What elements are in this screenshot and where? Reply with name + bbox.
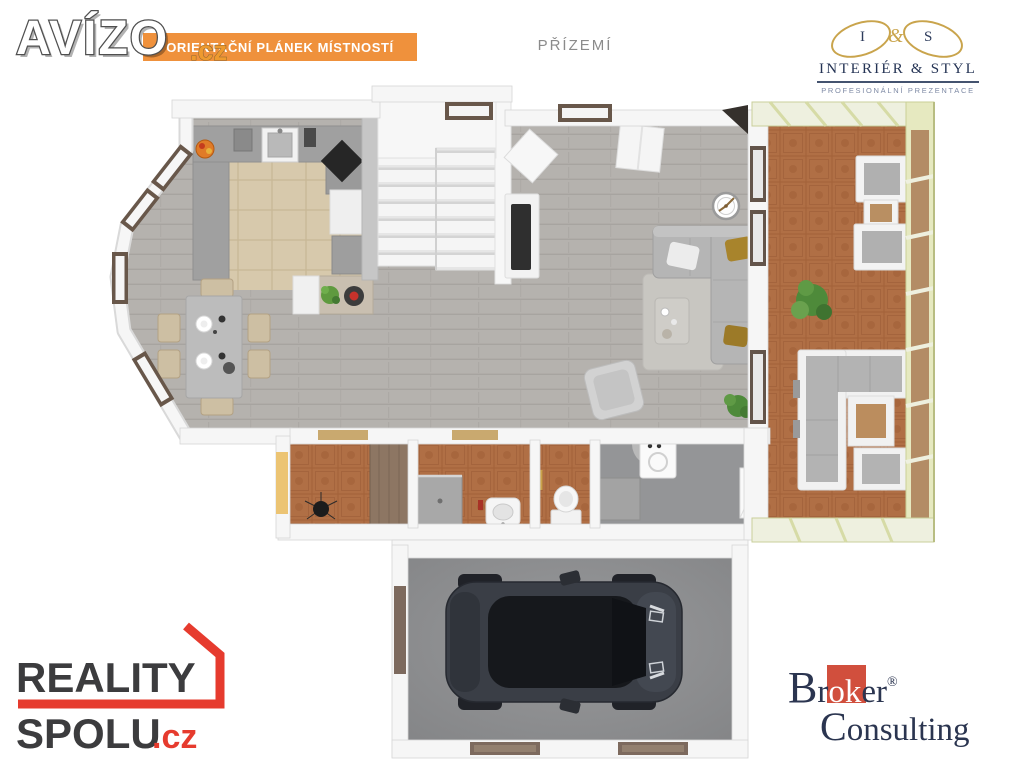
- avizo-cz-suffix: .cz: [190, 35, 227, 66]
- tv-bench: [505, 194, 539, 278]
- entry-door-yellow: [276, 452, 288, 514]
- spolu-word: SPOLU: [16, 710, 161, 757]
- kitchen-sink: [262, 128, 298, 162]
- avizo-logo: AVÍZO AVÍZO .cz: [10, 4, 260, 70]
- shower: [418, 476, 462, 526]
- interier-styl-monogram-icon: I & S: [802, 16, 994, 60]
- monogram-letter-i: I: [860, 29, 865, 46]
- interier-styl-tagline: PROFESIONÁLNÍ PREZENTACE: [802, 86, 994, 95]
- avizo-wordmark: AVÍZO: [16, 11, 169, 65]
- freezer: [600, 478, 640, 520]
- conservatory-armchair-small: [854, 448, 908, 490]
- tv: [511, 204, 531, 270]
- monogram-ampersand: &: [888, 25, 904, 48]
- hall-wardrobe: [370, 442, 408, 528]
- pillow-mustard-2: [723, 324, 750, 347]
- floorplan-presentation-page: { "header": { "avizo_logo": { "text": "A…: [0, 0, 1024, 768]
- floor-title: PŘÍZEMÍ: [495, 37, 655, 54]
- coffee-table: [655, 298, 689, 344]
- door-threshold: [318, 430, 368, 440]
- suv-car: [446, 570, 682, 714]
- reality-word: REALITY: [16, 654, 196, 701]
- reality-spolu-logo: REALITY SPOLU .cz: [12, 612, 247, 762]
- gold-loop-icon: [898, 13, 967, 64]
- cz-tld: .cz: [152, 718, 197, 756]
- kitchen-island: [293, 276, 373, 314]
- consulting-word: Consulting: [820, 704, 970, 749]
- broker-consulting-logo: Broker® Consulting: [786, 662, 1024, 754]
- white-cabinet: [616, 124, 664, 172]
- interier-styl-logo: I & S INTERIÉR & STYL PROFESIONÁLNÍ PREZ…: [802, 16, 994, 95]
- monogram-letter-s: S: [924, 29, 932, 46]
- interier-styl-name: INTERIÉR & STYL: [817, 60, 979, 83]
- coffee-machine: [304, 128, 316, 147]
- fruit-bowl: [196, 140, 214, 158]
- wall-clock: [713, 193, 739, 219]
- dining-table: [186, 296, 242, 398]
- conservatory-table: [848, 396, 894, 446]
- door-threshold-2: [452, 430, 498, 440]
- kitchen-appliance: [234, 129, 252, 151]
